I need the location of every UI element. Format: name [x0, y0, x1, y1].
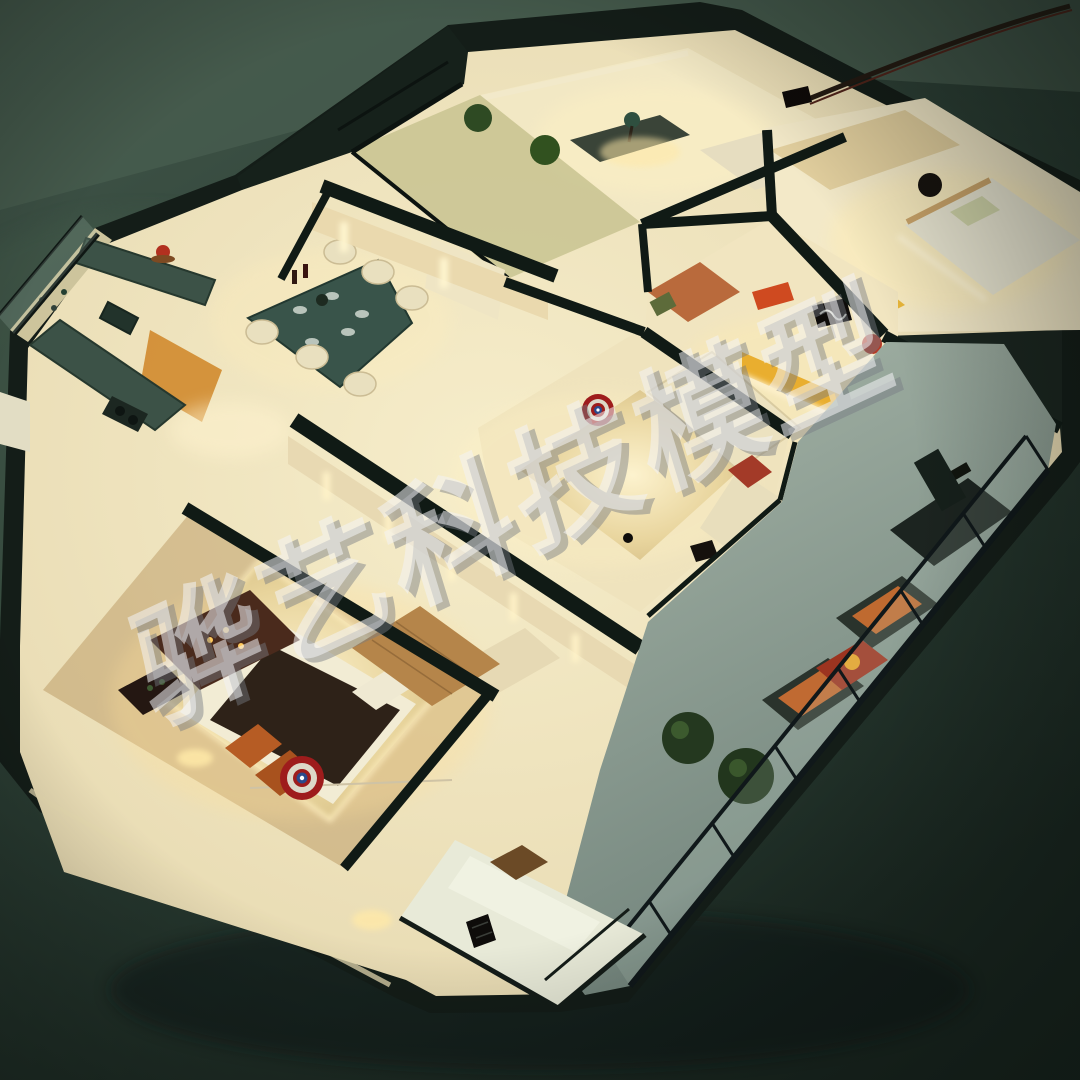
scene: 骅艺科技模型 骅艺科技模型 — [0, 0, 1080, 1080]
photo-miniature-apartment-model: 骅艺科技模型 骅艺科技模型 — [0, 0, 1080, 1080]
